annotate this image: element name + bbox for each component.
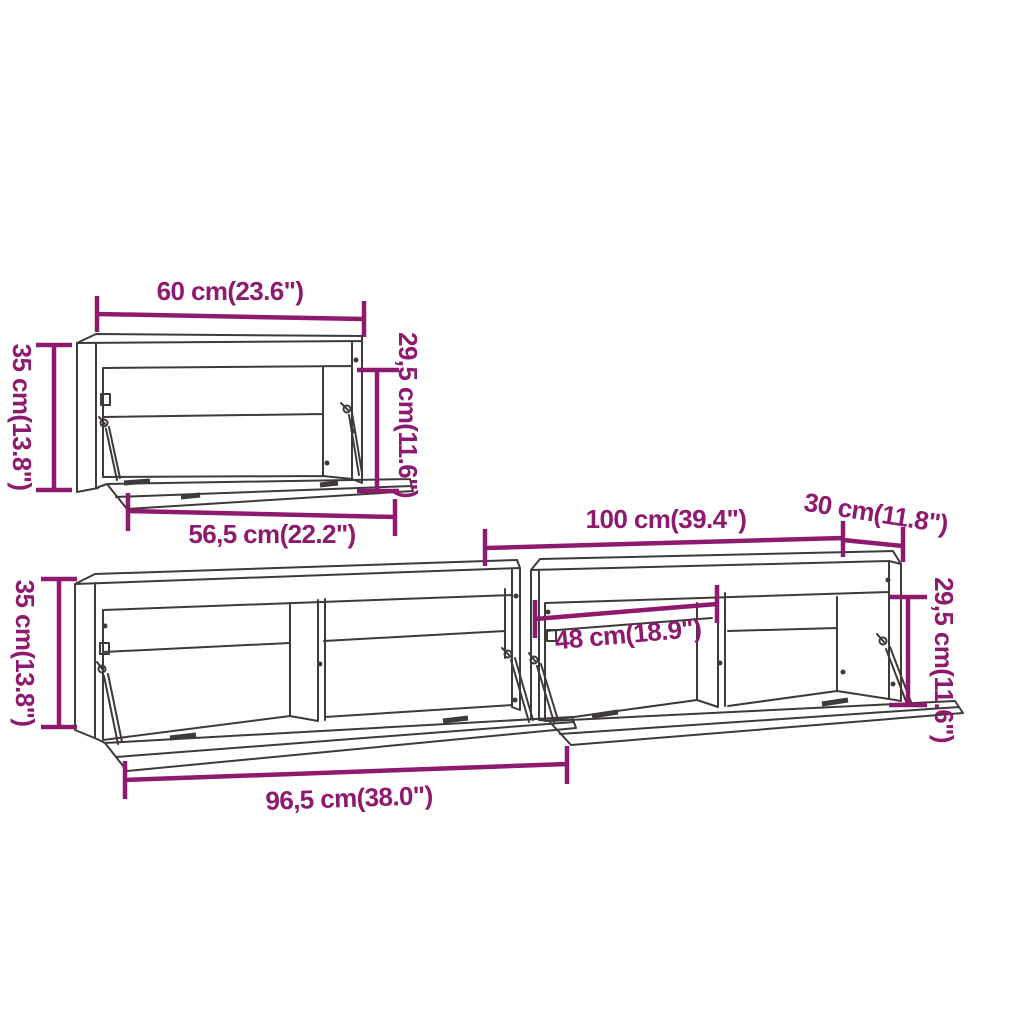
screw-dot [351,429,356,434]
label-top-height: 35 cm(13.8") [7,344,37,491]
label-bottom-door-width: 96,5 cm(38.0") [265,780,433,816]
label-bottom-height: 35 cm(13.8") [10,580,40,727]
label-bottom-right-width: 100 cm(39.4") [586,504,747,534]
screw-dot [546,610,551,615]
screw-dot [718,661,723,666]
label-bottom-opening-height: 29,5 cm(11.6") [929,577,959,743]
label-top-width: 60 cm(23.6") [157,276,304,306]
diagram-canvas: 60 cm(23.6") 35 cm(13.8") 29,5 cm(11.6")… [0,0,1024,1024]
furniture-dimension-diagram: 60 cm(23.6") 35 cm(13.8") 29,5 cm(11.6")… [0,0,1024,1024]
screw-dot [841,670,846,675]
screw-dot [354,358,359,363]
label-top-opening-height: 29,5 cm(11.6") [393,332,423,498]
screw-dot [318,662,323,667]
screw-dot [325,461,330,466]
screw-dot [514,594,519,599]
screw-dot [103,624,108,629]
screw-dot [891,682,896,687]
label-top-door-width: 56,5 cm(22.2") [188,519,355,549]
screw-dot [886,578,891,583]
screw-dot [513,698,518,703]
